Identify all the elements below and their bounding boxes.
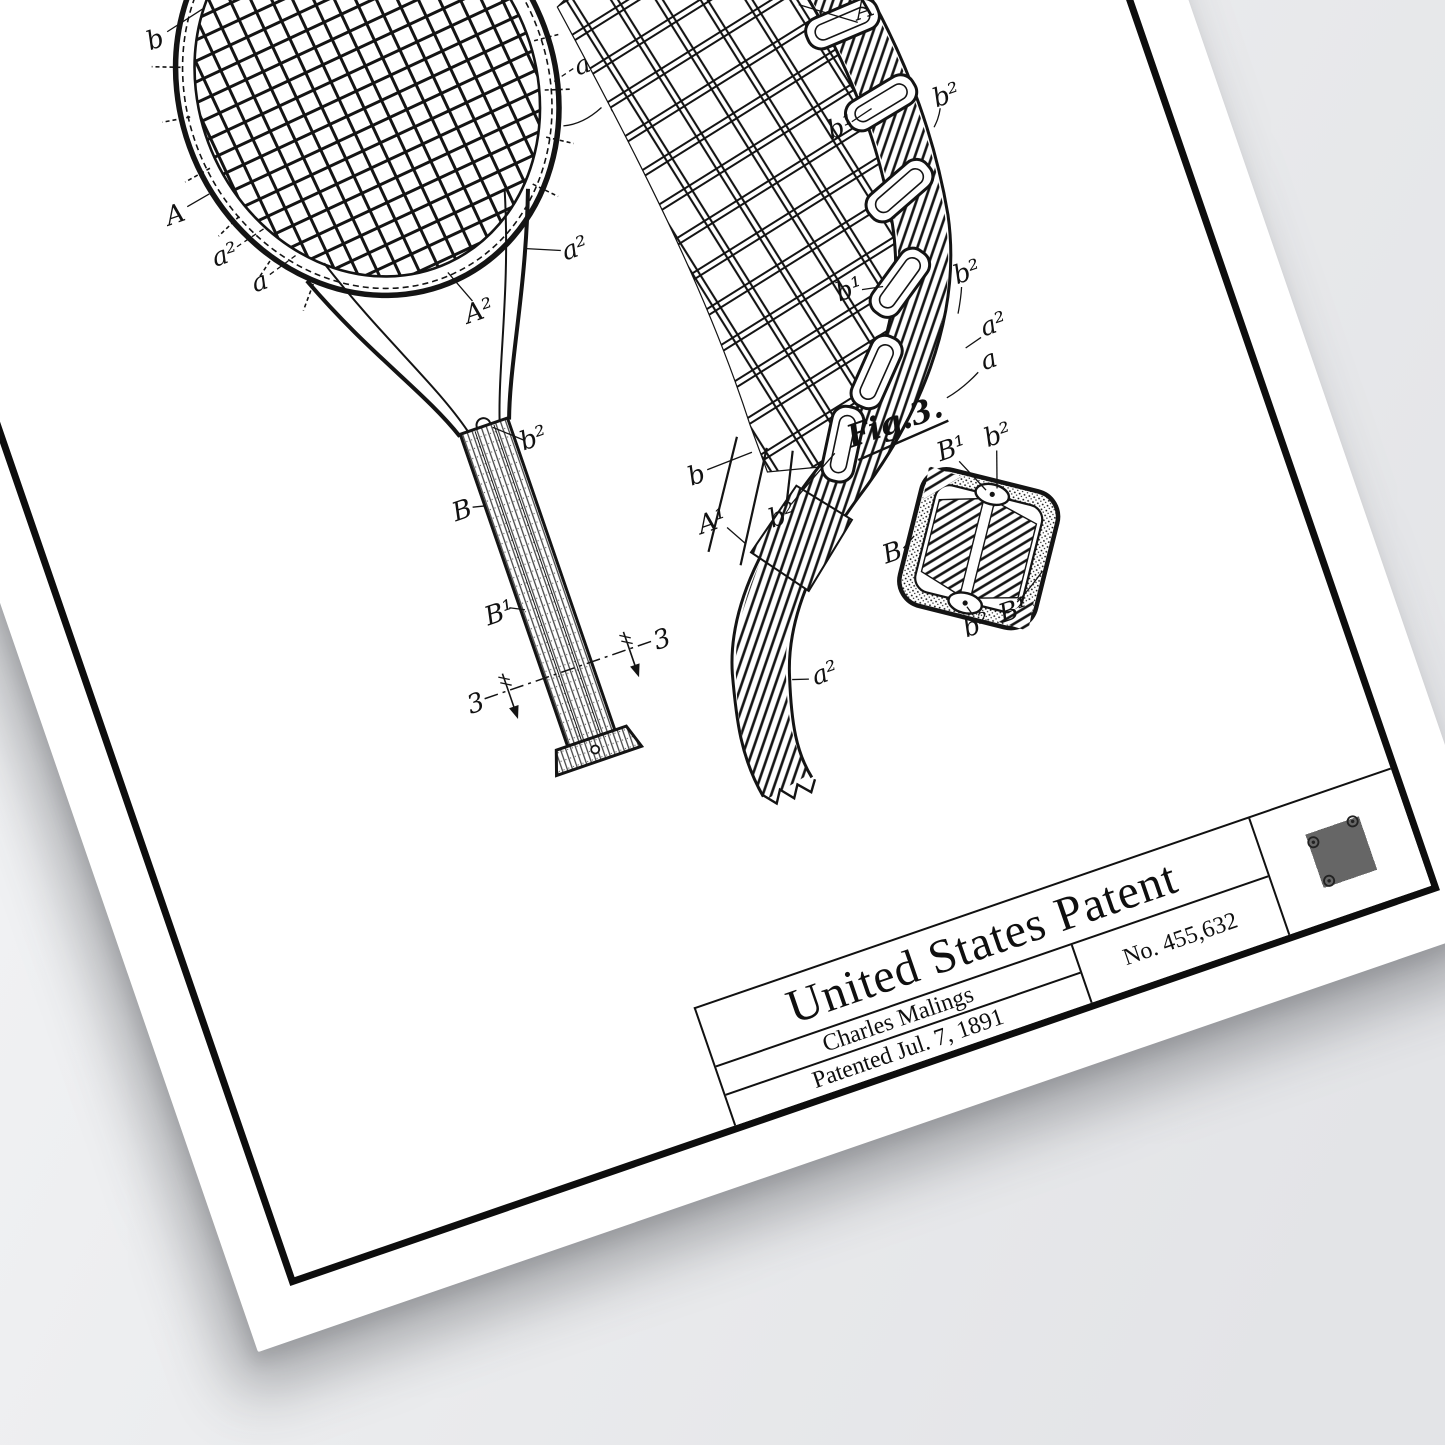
scene-background: b A a² a a² a A² a² b² B B¹ 3 3 [0, 0, 1445, 1445]
qr-code-icon [1294, 805, 1388, 899]
patent-poster: b A a² a a² a A² a² b² B B¹ 3 3 [0, 0, 1445, 1352]
